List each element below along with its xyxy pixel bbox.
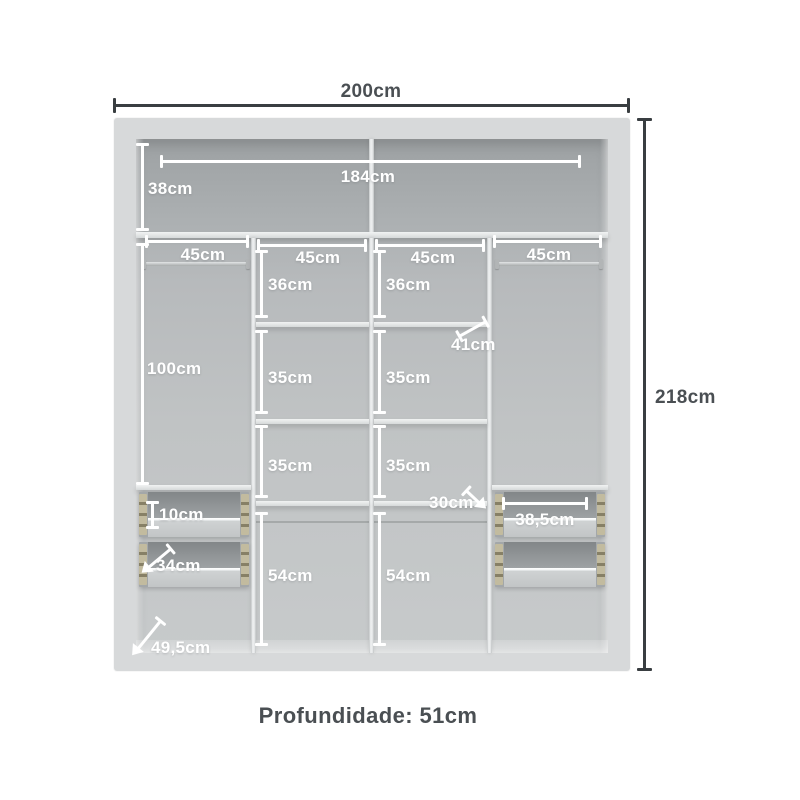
dim-line-col3-width — [375, 244, 485, 247]
label-col3-width: 45cm — [411, 249, 456, 268]
label-left-drawer-depth: 34cm — [156, 557, 201, 576]
label-c2-sec1: 36cm — [268, 276, 313, 295]
label-col4-width: 45cm — [527, 246, 572, 265]
label-col2-width: 45cm — [296, 249, 341, 268]
drawer-slide-rail — [495, 544, 503, 585]
dim-line-col1-width — [145, 240, 249, 243]
label-c3-sec4: 54cm — [386, 567, 431, 586]
dim-line-c3-sec3 — [378, 425, 381, 498]
drawer-slide-rail — [597, 544, 605, 585]
shelf-c2-1 — [256, 322, 369, 327]
label-total-width: 200cm — [341, 82, 402, 103]
shelf-c2-2 — [256, 419, 369, 424]
label-shelf-depth: 41cm — [451, 336, 496, 355]
depth-caption: Profundidade: 51cm — [259, 704, 478, 728]
dim-line-top-section-height — [141, 143, 144, 231]
label-drawer-front-height: 10cm — [159, 506, 204, 525]
dim-line-c3-sec2 — [378, 330, 381, 414]
wardrobe-dimension-diagram: 200cm 218cm — [0, 0, 800, 800]
drawer-slide-rail — [241, 544, 249, 585]
label-total-height: 218cm — [655, 388, 716, 409]
dim-line-col4-width — [493, 240, 602, 243]
label-col1-width: 45cm — [181, 246, 226, 265]
shelf-c1-drawer-top — [136, 485, 251, 490]
dim-line-hang-height — [141, 243, 144, 485]
dim-line-c2-sec3 — [260, 425, 263, 498]
drawer-slide-rail — [597, 494, 605, 535]
dim-line-drawer-front-height — [151, 501, 154, 529]
shelf-c3-2 — [374, 419, 487, 424]
label-c2-sec4: 54cm — [268, 567, 313, 586]
label-right-drawer-depth: 30cm — [429, 494, 474, 513]
divider-3 — [487, 238, 492, 653]
label-c2-sec2: 35cm — [268, 369, 313, 388]
dim-line-c3-sec1 — [378, 250, 381, 318]
dim-line-right-drawer-width — [502, 502, 588, 505]
dim-line-total-width — [113, 104, 630, 107]
label-top-section-height: 38cm — [148, 180, 193, 199]
label-c3-sec2: 35cm — [386, 369, 431, 388]
dim-line-inner-width — [160, 160, 581, 163]
shelf-c3-1 — [374, 322, 487, 327]
label-c3-sec1: 36cm — [386, 276, 431, 295]
dim-line-c2-sec2 — [260, 330, 263, 414]
dim-line-c2-sec4 — [260, 512, 263, 646]
drawer-right-2 — [495, 542, 605, 587]
drawer-slide-rail — [241, 494, 249, 535]
dim-line-c3-sec4 — [378, 512, 381, 646]
drawer-front — [504, 568, 596, 587]
divider-2 — [369, 238, 374, 653]
label-c3-sec3: 35cm — [386, 457, 431, 476]
shelf-c4-drawer-top — [492, 485, 608, 490]
label-hang-height: 100cm — [147, 360, 201, 379]
dim-line-c2-sec1 — [260, 250, 263, 318]
shelf-c2-3 — [256, 501, 369, 506]
label-inner-width: 184cm — [341, 168, 395, 187]
drawer-cavity — [504, 542, 596, 568]
label-right-drawer-width: 38,5cm — [515, 511, 574, 530]
dim-line-col2-width — [257, 244, 367, 247]
divider-1 — [251, 238, 256, 653]
label-c2-sec3: 35cm — [268, 457, 313, 476]
label-base-depth: 49,5cm — [151, 639, 210, 658]
dim-line-total-height — [643, 118, 646, 671]
